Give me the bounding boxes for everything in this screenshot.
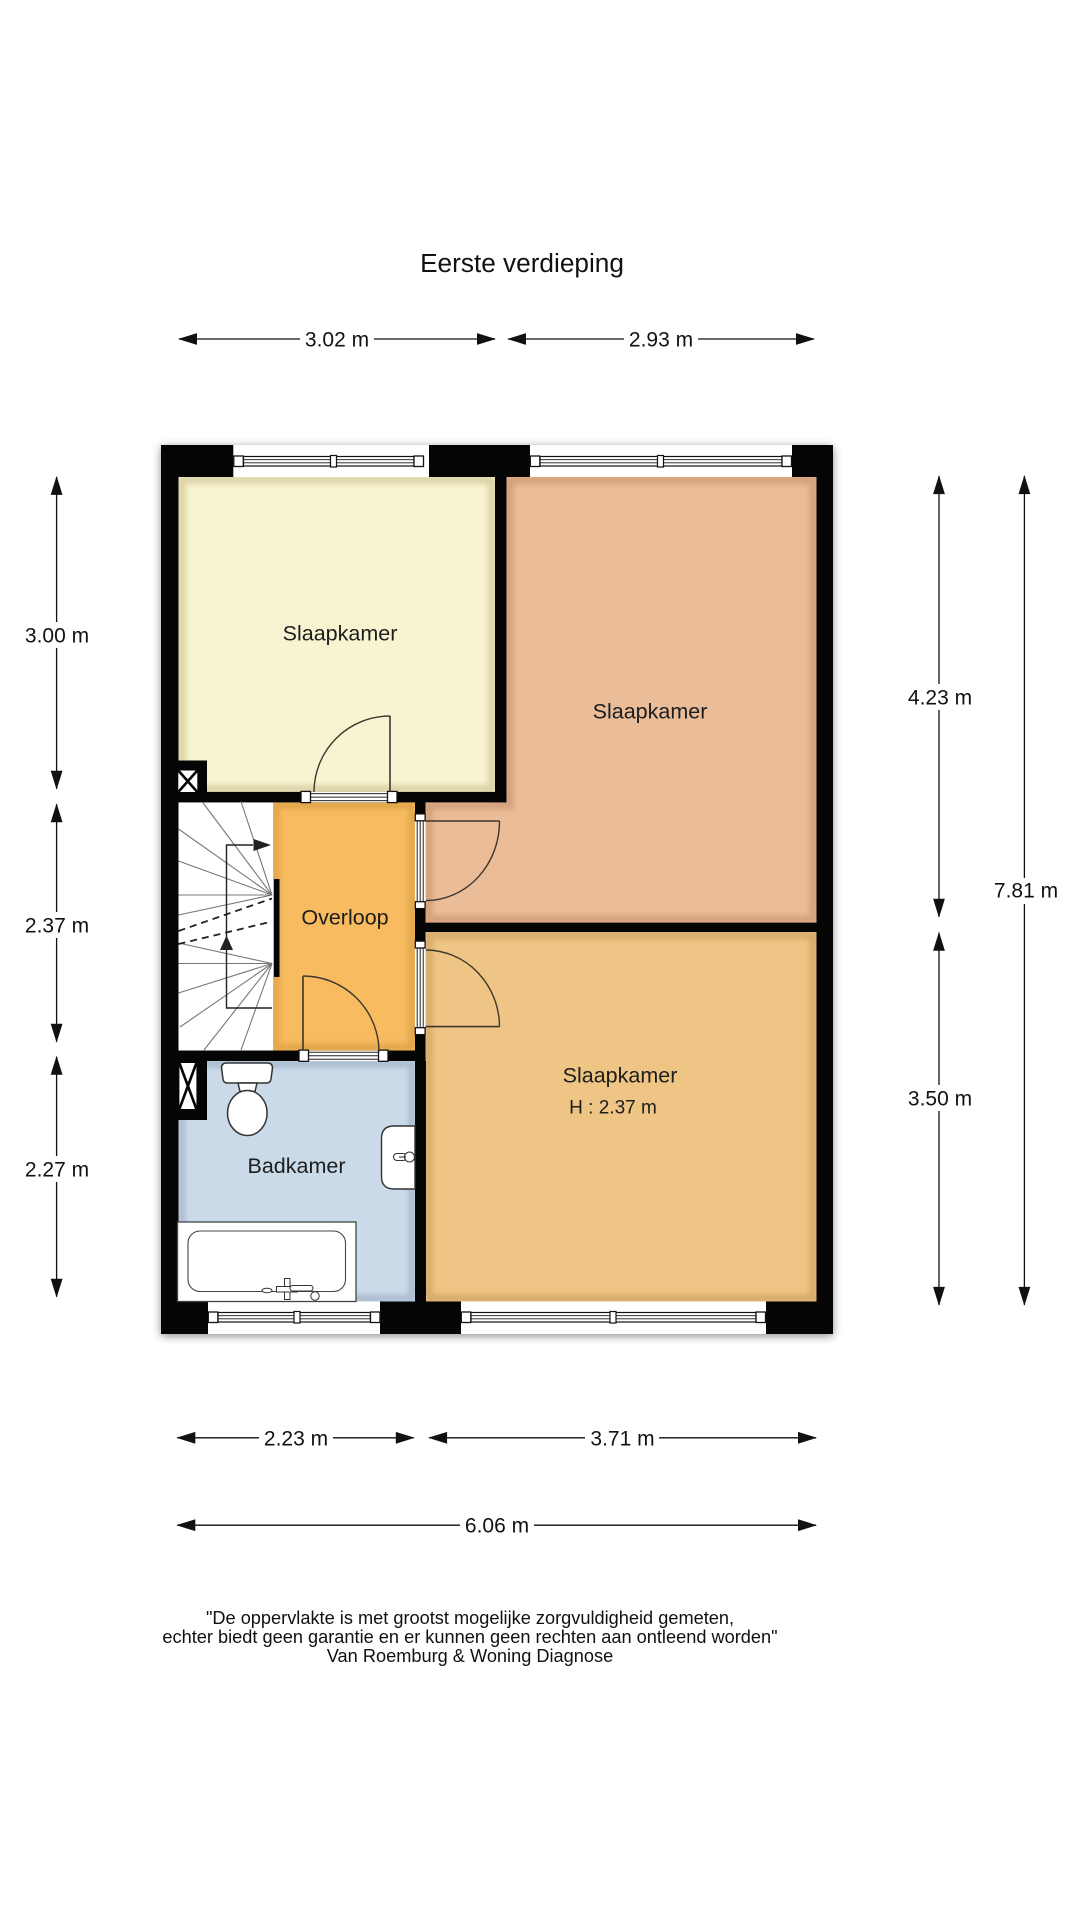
- svg-text:3.02 m: 3.02 m: [305, 329, 369, 352]
- svg-text:echter biedt geen garantie en: echter biedt geen garantie en er kunnen …: [162, 1627, 777, 1647]
- svg-text:"De oppervlakte is met grootst: "De oppervlakte is met grootst mogelijke…: [206, 1608, 734, 1628]
- svg-text:Slaapkamer: Slaapkamer: [593, 700, 708, 724]
- svg-text:7.81 m: 7.81 m: [994, 880, 1058, 903]
- svg-text:2.27 m: 2.27 m: [25, 1159, 89, 1182]
- svg-text:Van Roemburg & Woning Diagnose: Van Roemburg & Woning Diagnose: [327, 1646, 613, 1666]
- svg-text:Eerste verdieping: Eerste verdieping: [420, 248, 624, 278]
- svg-text:Overloop: Overloop: [301, 906, 388, 930]
- svg-text:2.23 m: 2.23 m: [264, 1427, 328, 1450]
- svg-text:3.50 m: 3.50 m: [908, 1088, 972, 1111]
- svg-text:H : 2.37 m: H : 2.37 m: [569, 1098, 657, 1119]
- svg-text:6.06 m: 6.06 m: [465, 1515, 529, 1538]
- svg-text:Slaapkamer: Slaapkamer: [283, 622, 398, 646]
- svg-text:3.00 m: 3.00 m: [25, 625, 89, 648]
- svg-text:2.37 m: 2.37 m: [25, 915, 89, 938]
- svg-text:Slaapkamer: Slaapkamer: [563, 1064, 678, 1088]
- svg-text:2.93 m: 2.93 m: [629, 329, 693, 352]
- svg-text:Badkamer: Badkamer: [248, 1154, 346, 1178]
- svg-text:3.71 m: 3.71 m: [590, 1427, 654, 1450]
- svg-text:4.23 m: 4.23 m: [908, 687, 972, 710]
